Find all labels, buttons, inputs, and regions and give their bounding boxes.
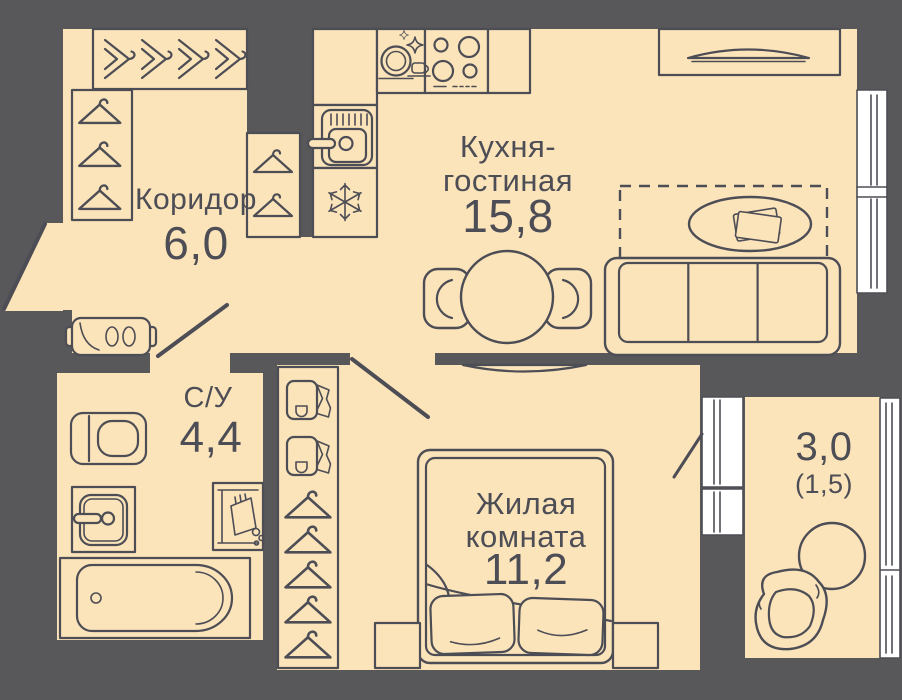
tv-stand <box>659 29 840 75</box>
bedroom-door-swing <box>352 359 428 417</box>
window-balcony-door <box>702 397 743 535</box>
label-balcony-area-secondary: (1,5) <box>764 470 884 499</box>
balcony-door-swing <box>674 434 702 477</box>
wardrobe-bedroom <box>278 367 338 668</box>
label-corridor-name: Коридор <box>106 184 286 216</box>
wardrobe-corridor-top <box>93 29 247 89</box>
bathroom-sink <box>72 487 135 552</box>
label-corridor-area: 6,0 <box>106 219 286 269</box>
bathroom-door-swing <box>158 305 227 356</box>
kitchen-cabinets <box>313 29 530 105</box>
dining-set <box>424 251 591 343</box>
kitchen-sink <box>308 105 377 168</box>
coffee-table <box>689 197 811 251</box>
sofa <box>605 258 840 355</box>
label-kitchen-living-area: 15,8 <box>408 192 608 242</box>
floorplan: Коридор 6,0 Кухня- гостиная 15,8 С/У 4,4… <box>0 0 902 700</box>
label-bedroom-name: Жилая комната <box>426 487 626 553</box>
nightstand-right <box>613 623 658 668</box>
bathtub <box>60 558 250 638</box>
opening-entry-door <box>3 223 63 311</box>
label-bathroom-name: С/У <box>158 383 258 414</box>
label-bedroom-area: 11,2 <box>426 546 626 594</box>
plan-linework <box>0 0 902 700</box>
label-bathroom-area: 4,4 <box>156 414 266 462</box>
label-kitchen-living-name: Кухня- гостиная <box>408 130 608 198</box>
window-living <box>857 90 887 293</box>
hallway-bench <box>66 318 156 355</box>
label-balcony-area: 3,0 <box>764 426 884 469</box>
toilet <box>71 413 146 464</box>
fridge-icon <box>313 168 377 237</box>
washing-machine <box>213 483 264 550</box>
balcony-chair <box>756 570 827 650</box>
bedroom-tv-icon <box>463 365 586 372</box>
nightstand-left <box>375 623 420 668</box>
